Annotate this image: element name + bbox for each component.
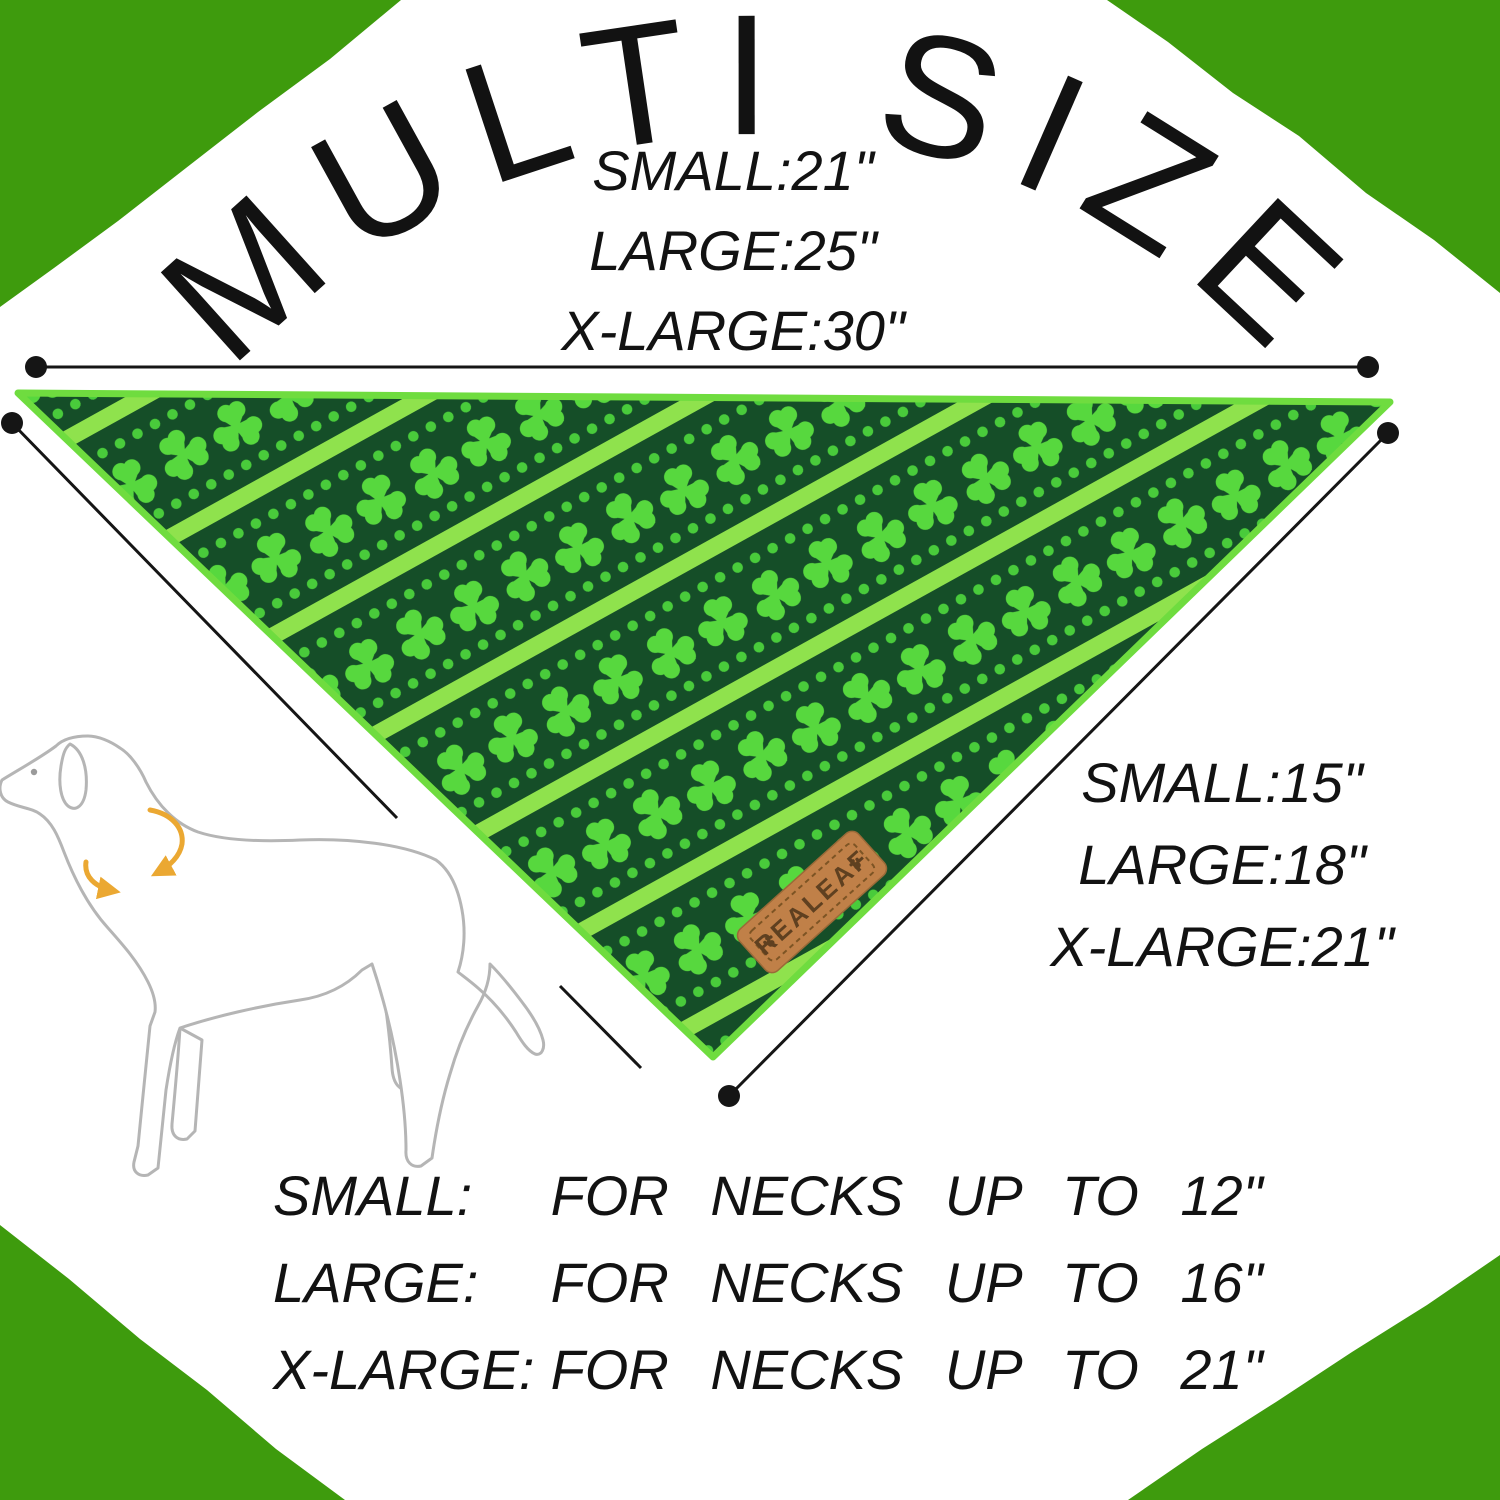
neck-fit-row: LARGE: FOR NECKS UP TO 16" <box>273 1239 1263 1326</box>
dog-outline-figure <box>0 710 560 1200</box>
measure-endpoint-dot <box>718 1085 740 1107</box>
edge-size-list: SMALL:15" LARGE:18" X-LARGE:21" <box>1050 742 1394 988</box>
bandana-size-infographic: MULTI SIZE SMALL:21" LARGE:25" X-LARGE:3… <box>0 0 1500 1500</box>
measure-endpoint-dot <box>1377 422 1399 444</box>
neck-fit-label: X-LARGE: <box>273 1326 535 1413</box>
edge-size-xlarge: X-LARGE:21" <box>1050 906 1394 988</box>
dog-far-front-leg <box>172 1028 202 1139</box>
edge-size-large: LARGE:18" <box>1050 824 1394 906</box>
neck-fit-table: SMALL: FOR NECKS UP TO 12" LARGE: FOR NE… <box>273 1152 1263 1413</box>
neck-fit-label: SMALL: <box>273 1152 535 1239</box>
measure-endpoint-dot <box>1 412 23 434</box>
neck-fit-row: X-LARGE: FOR NECKS UP TO 21" <box>273 1326 1263 1413</box>
dog-eye <box>31 769 37 775</box>
edge-size-small: SMALL:15" <box>1050 742 1394 824</box>
left-edge-measure-line <box>560 986 641 1068</box>
neck-fit-row: SMALL: FOR NECKS UP TO 12" <box>273 1152 1263 1239</box>
neck-fit-desc: FOR NECKS UP TO 12" <box>551 1152 1263 1239</box>
neck-fit-desc: FOR NECKS UP TO 16" <box>551 1239 1263 1326</box>
measure-endpoint-dot <box>1357 356 1379 378</box>
neck-fit-desc: FOR NECKS UP TO 21" <box>551 1326 1263 1413</box>
measure-endpoint-dot <box>25 356 47 378</box>
neck-fit-label: LARGE: <box>273 1239 535 1326</box>
top-width-measure <box>25 356 1379 378</box>
